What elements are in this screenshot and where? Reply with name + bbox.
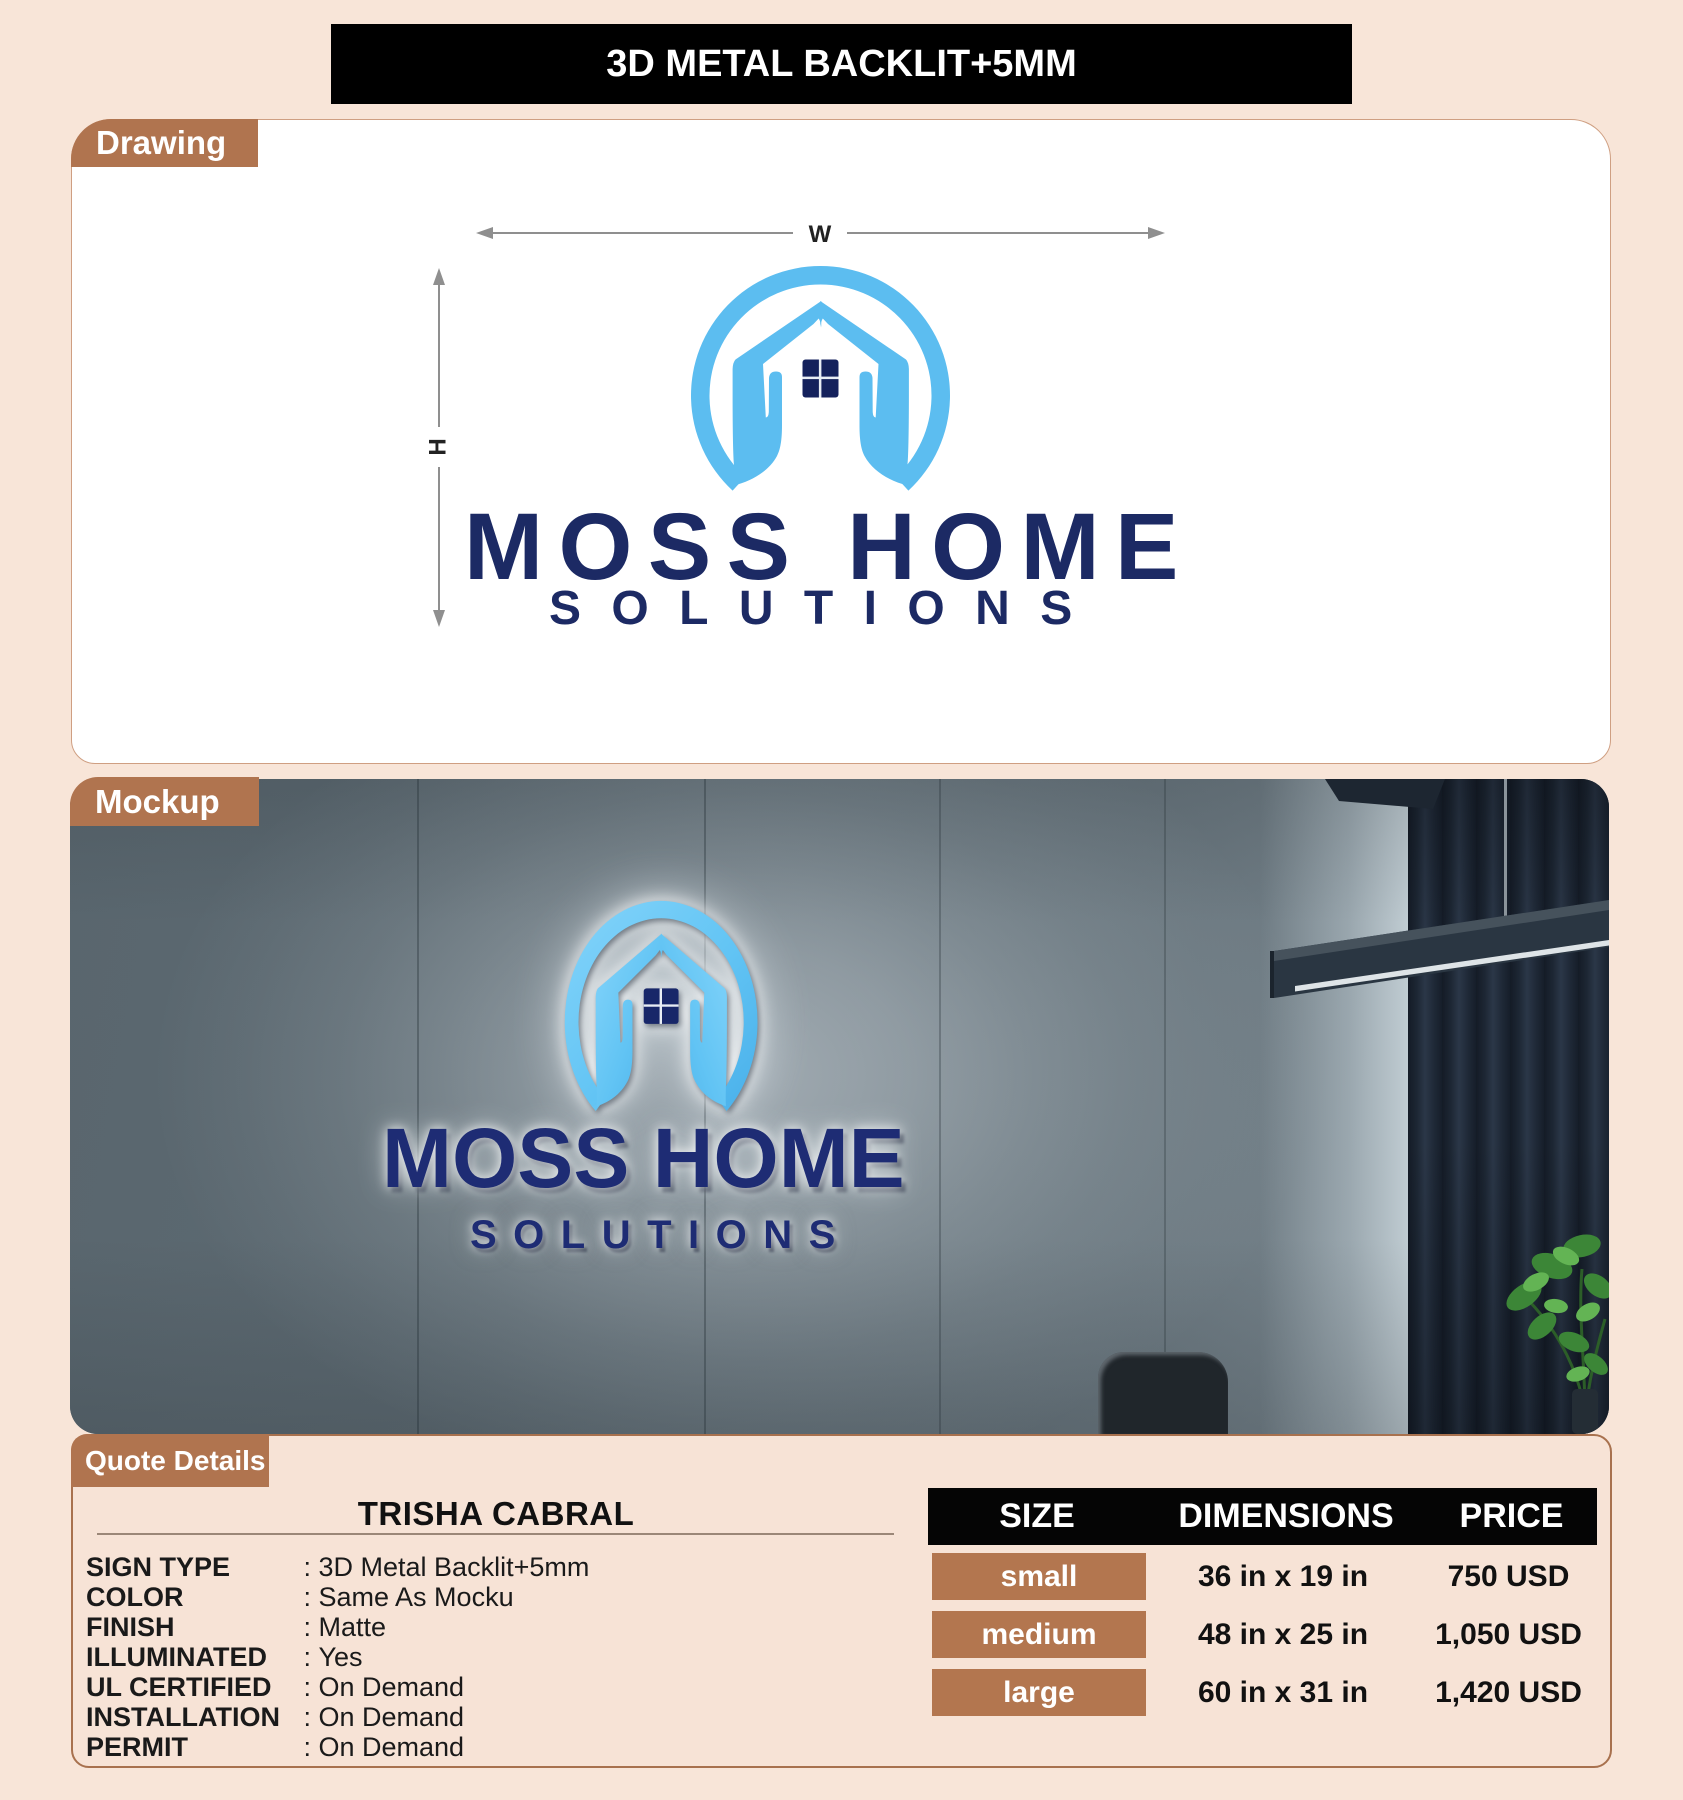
svg-text:W: W (809, 221, 832, 248)
svg-text:H: H (424, 438, 451, 455)
